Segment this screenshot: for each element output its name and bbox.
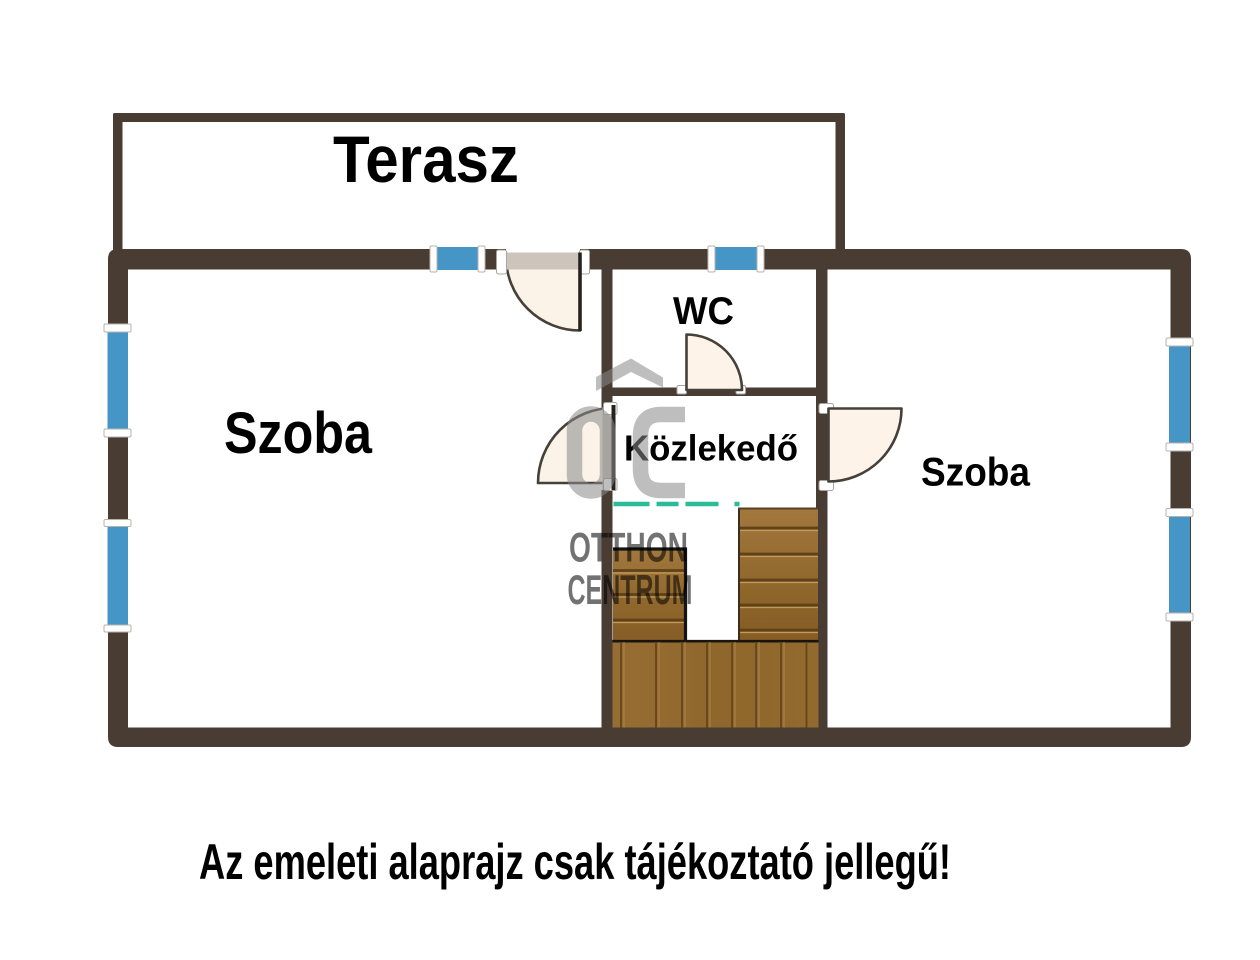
svg-text:Közlekedő: Közlekedő [624,428,798,469]
svg-text:Szoba: Szoba [224,401,373,466]
svg-text:Terasz: Terasz [333,122,519,196]
svg-text:WC: WC [673,290,734,333]
svg-text:Szoba: Szoba [921,451,1031,495]
svg-text:Az emeleti alaprajz csak tájék: Az emeleti alaprajz csak tájékoztató jel… [199,833,951,890]
svg-text:CENTRUM: CENTRUM [568,566,693,613]
svg-text:OTTHON: OTTHON [569,524,688,571]
